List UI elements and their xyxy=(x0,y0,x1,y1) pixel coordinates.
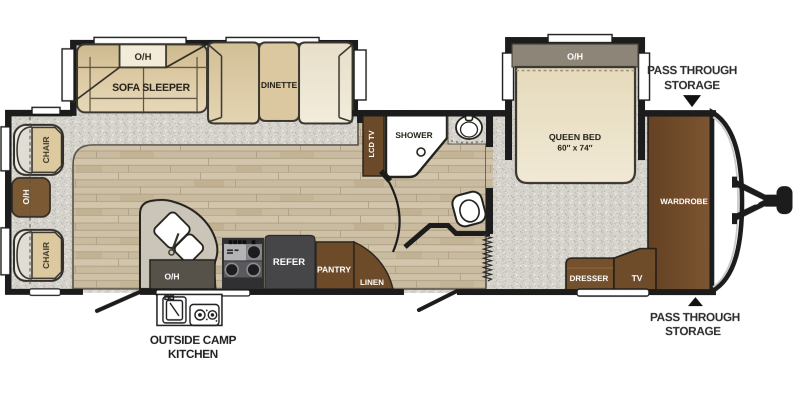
svg-text:DINETTE: DINETTE xyxy=(261,80,298,90)
svg-text:O/H: O/H xyxy=(164,271,179,281)
svg-text:OUTSIDE CAMP: OUTSIDE CAMP xyxy=(150,333,237,347)
svg-text:KITCHEN: KITCHEN xyxy=(168,347,218,361)
svg-text:PANTRY: PANTRY xyxy=(317,264,351,274)
svg-text:STORAGE: STORAGE xyxy=(665,324,721,338)
svg-text:WARDROBE: WARDROBE xyxy=(660,197,708,206)
svg-text:CHAIR: CHAIR xyxy=(41,136,51,163)
svg-text:PASS THROUGH: PASS THROUGH xyxy=(650,310,740,324)
svg-text:STORAGE: STORAGE xyxy=(664,78,720,92)
svg-text:REFER: REFER xyxy=(273,257,305,268)
svg-text:CHAIR: CHAIR xyxy=(41,242,51,269)
svg-text:60″ x 74″: 60″ x 74″ xyxy=(557,144,592,153)
svg-text:TV: TV xyxy=(632,273,643,283)
svg-text:O/H: O/H xyxy=(567,52,583,62)
svg-text:O/H: O/H xyxy=(135,52,152,63)
svg-text:QUEEN BED: QUEEN BED xyxy=(549,132,601,142)
svg-text:PASS THROUGH: PASS THROUGH xyxy=(647,63,737,77)
svg-text:DRESSER: DRESSER xyxy=(570,274,609,283)
svg-text:LINEN: LINEN xyxy=(360,278,384,287)
svg-text:SHOWER: SHOWER xyxy=(395,130,432,140)
svg-text:SOFA SLEEPER: SOFA SLEEPER xyxy=(112,82,190,94)
svg-text:LCD TV: LCD TV xyxy=(367,130,376,157)
